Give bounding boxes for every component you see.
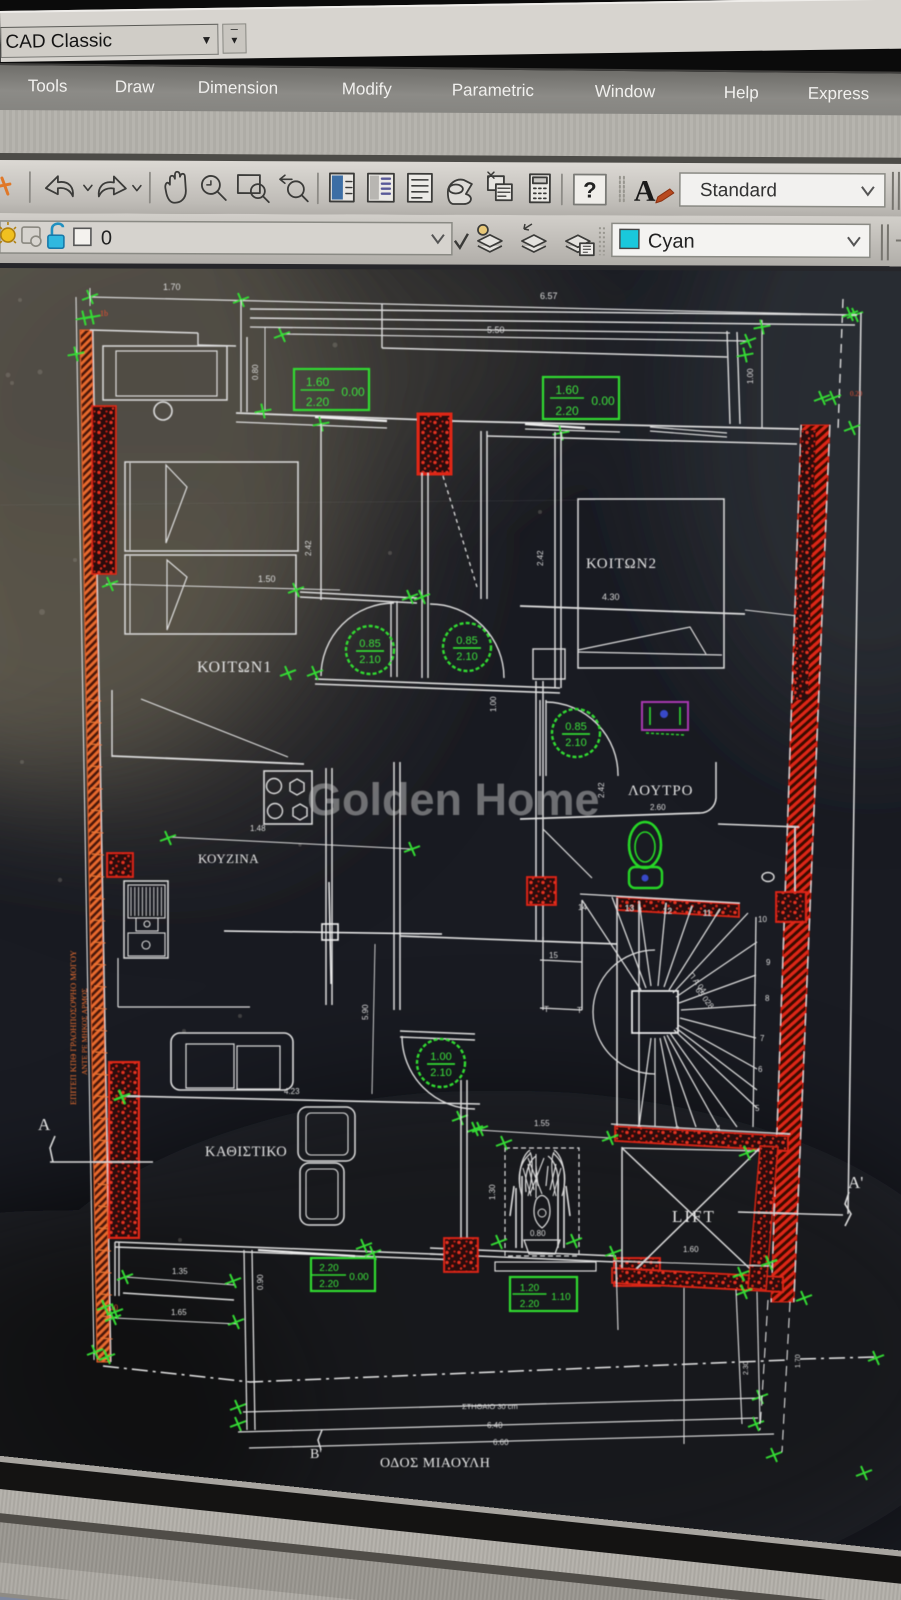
svg-text:LIFT: LIFT [672, 1207, 716, 1226]
svg-text:Standard: Standard [700, 180, 777, 201]
svg-text:1.35: 1.35 [172, 1267, 188, 1276]
svg-text:1.70: 1.70 [795, 1354, 802, 1368]
svg-text:0.85: 0.85 [456, 635, 477, 647]
svg-text:ΛΟΥΤΡΟ: ΛΟΥΤΡΟ [628, 783, 694, 799]
svg-text:15: 15 [549, 951, 558, 960]
svg-text:2.42: 2.42 [304, 540, 313, 556]
svg-text:6.40: 6.40 [487, 1421, 503, 1430]
svg-text:6: 6 [758, 1065, 763, 1074]
svg-text:4.23: 4.23 [284, 1087, 300, 1096]
svg-text:1.50: 1.50 [258, 574, 276, 584]
svg-text:2.30: 2.30 [743, 1361, 750, 1375]
svg-text:2.10: 2.10 [565, 737, 586, 749]
svg-text:0.00: 0.00 [341, 385, 365, 399]
svg-text:ΚΟΥΖΙΝΑ: ΚΟΥΖΙΝΑ [198, 851, 259, 866]
svg-text:1.65: 1.65 [171, 1308, 187, 1317]
svg-text:2.20: 2.20 [520, 1299, 540, 1310]
svg-text:0.20: 0.20 [850, 390, 863, 398]
svg-text:2.20: 2.20 [555, 404, 579, 418]
svg-text:T: T [577, 1006, 582, 1015]
svg-text:1.60: 1.60 [555, 383, 579, 397]
svg-text:0.85: 0.85 [565, 721, 586, 733]
svg-text:2.10: 2.10 [359, 654, 380, 666]
svg-text:5: 5 [755, 1104, 760, 1113]
svg-text:11: 11 [703, 909, 712, 918]
svg-text:2.20: 2.20 [319, 1263, 339, 1274]
svg-text:A: A [634, 175, 656, 208]
svg-text:ΕΠΙΤΕΠ ΚΠΘ ΓΡΑΟΗΠΟΣΟΨΗΟ ΜΟΓΟΥ: ΕΠΙΤΕΠ ΚΠΘ ΓΡΑΟΗΠΟΣΟΨΗΟ ΜΟΓΟΥ [68, 950, 78, 1105]
svg-text:13: 13 [625, 904, 634, 913]
svg-text:6.57: 6.57 [540, 291, 558, 301]
svg-text:9: 9 [766, 958, 771, 967]
svg-text:?: ? [583, 178, 597, 203]
svg-text:1.70: 1.70 [163, 282, 181, 292]
svg-text:Cyan: Cyan [648, 230, 695, 252]
svg-text:A: A [38, 1115, 51, 1134]
svg-text:0.80: 0.80 [251, 364, 260, 380]
svg-text:ΚΟΙΤΩΝ1: ΚΟΙΤΩΝ1 [197, 659, 272, 676]
svg-text:4.30: 4.30 [602, 592, 620, 602]
svg-text:1.00: 1.00 [746, 368, 755, 384]
svg-text:ΚΟΙΤΩΝ2: ΚΟΙΤΩΝ2 [586, 556, 657, 572]
svg-text:8: 8 [765, 994, 770, 1003]
svg-text:1.10: 1.10 [551, 1292, 571, 1303]
svg-text:7: 7 [760, 1034, 765, 1043]
svg-text:1.20: 1.20 [520, 1283, 540, 1294]
svg-text:2.10: 2.10 [456, 651, 477, 663]
svg-text:1.55: 1.55 [534, 1119, 550, 1128]
svg-text:10: 10 [758, 915, 767, 924]
svg-text:2.20: 2.20 [319, 1279, 339, 1290]
svg-text:2.42: 2.42 [536, 550, 545, 566]
svg-text:14: 14 [578, 903, 587, 912]
svg-text:6.60: 6.60 [493, 1438, 509, 1447]
svg-text:ΣΤΗΘΑΙΟ 30 cm: ΣΤΗΘΑΙΟ 30 cm [462, 1402, 518, 1411]
svg-text:5.90: 5.90 [361, 1004, 370, 1020]
svg-text:2.60: 2.60 [650, 803, 666, 812]
svg-text:1.00: 1.00 [430, 1051, 451, 1063]
svg-text:1b: 1b [100, 309, 108, 318]
svg-text:2.20: 2.20 [306, 395, 330, 409]
svg-text:2.10: 2.10 [430, 1067, 451, 1079]
svg-text:A': A' [848, 1173, 863, 1192]
svg-text:0: 0 [101, 227, 112, 249]
svg-text:1.60: 1.60 [306, 375, 330, 389]
svg-text:1.60: 1.60 [683, 1245, 699, 1254]
svg-text:1.30: 1.30 [488, 1184, 497, 1200]
svg-text:Golden Home: Golden Home [307, 774, 600, 825]
svg-text:ΚΑΘΙΣΤΙΚΟ: ΚΑΘΙΣΤΙΚΟ [205, 1144, 287, 1160]
svg-text:0.90: 0.90 [256, 1274, 265, 1290]
svg-text:0.85: 0.85 [359, 638, 380, 650]
svg-text:ΑΝΤΕ ΡΕ ΜΗΚΟΣ ΑΡΜΟΣ: ΑΝΤΕ ΡΕ ΜΗΚΟΣ ΑΡΜΟΣ [80, 988, 89, 1075]
svg-text:0.00: 0.00 [349, 1272, 369, 1283]
svg-text:0.00: 0.00 [591, 394, 615, 408]
svg-text:1.48: 1.48 [250, 824, 266, 833]
svg-text:12: 12 [663, 907, 672, 916]
svg-text:T: T [544, 1005, 549, 1014]
svg-text:1.00: 1.00 [489, 696, 498, 712]
svg-text:ΟΔΟΣ ΜΙΑΟΥΛΗ: ΟΔΟΣ ΜΙΑΟΥΛΗ [380, 1456, 490, 1471]
svg-text:0.80: 0.80 [530, 1229, 546, 1238]
